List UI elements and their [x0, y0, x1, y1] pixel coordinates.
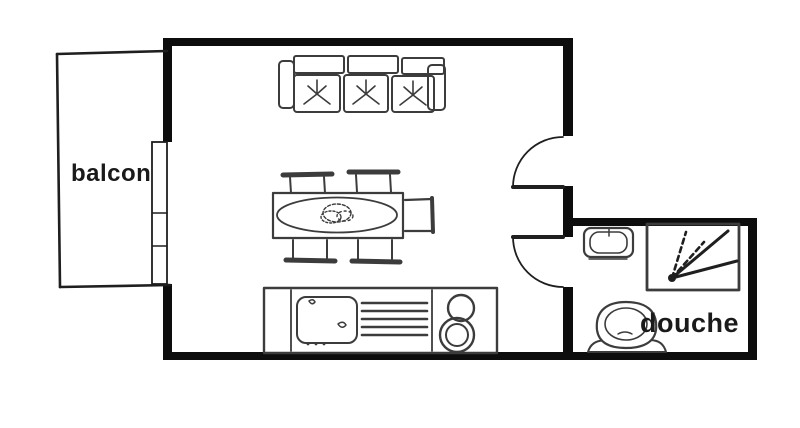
chair-icon-top-right [349, 172, 398, 192]
chair-icon-top-left [283, 174, 332, 193]
shower-room-label: douche [640, 310, 739, 337]
floor-plan: balcon douche [0, 0, 800, 428]
drainboard-icon [362, 303, 427, 335]
wall-bathroom-right [748, 218, 757, 360]
wall-left-upper [163, 38, 172, 142]
wall-right-lower [563, 287, 573, 360]
stove-icon [440, 295, 474, 352]
chair-icon-right [405, 198, 433, 232]
kitchen-sink-icon [297, 297, 357, 345]
chair-icon-bottom-right [352, 240, 400, 262]
chair-icon-bottom-left [286, 240, 335, 261]
window-icon [152, 142, 167, 284]
entrance-door-icon [513, 137, 563, 187]
wall-right-upper [563, 38, 573, 136]
dining-table-icon [273, 172, 433, 262]
table-centerpiece [321, 204, 353, 223]
kitchen-counter-icon [264, 288, 497, 353]
wall-right-middle [563, 186, 573, 237]
sofa-icon [279, 56, 445, 112]
washbasin-icon [584, 228, 633, 259]
cushion-pattern [304, 80, 426, 105]
balcony-label: balcon [71, 162, 151, 186]
wall-left-lower [163, 284, 172, 360]
wall-top [163, 38, 573, 46]
shower-icon [647, 224, 739, 290]
floor-plan-drawing [0, 0, 800, 428]
bathroom-door-icon [513, 237, 563, 287]
